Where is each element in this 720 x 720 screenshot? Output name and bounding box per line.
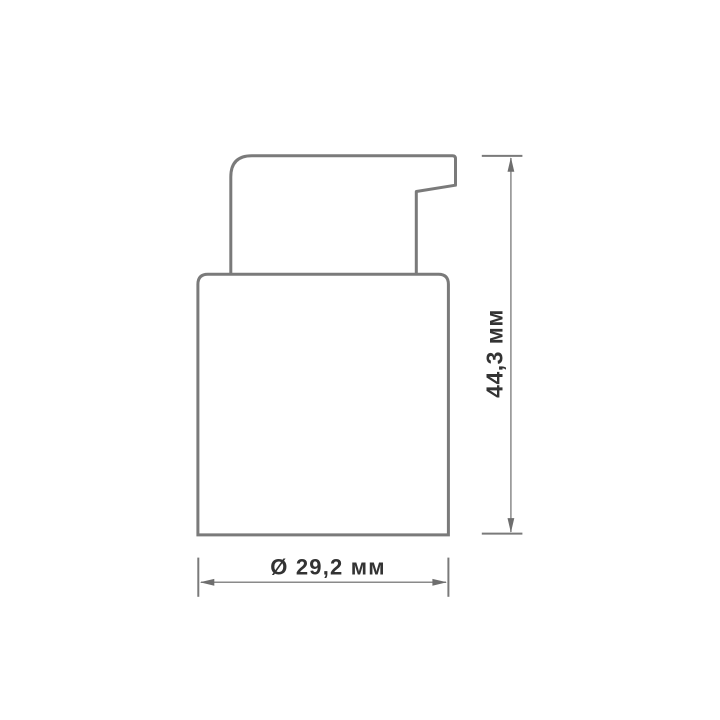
svg-text:44,3 мм: 44,3 мм <box>481 309 507 398</box>
svg-text:Ø 29,2 мм: Ø 29,2 мм <box>270 555 386 580</box>
